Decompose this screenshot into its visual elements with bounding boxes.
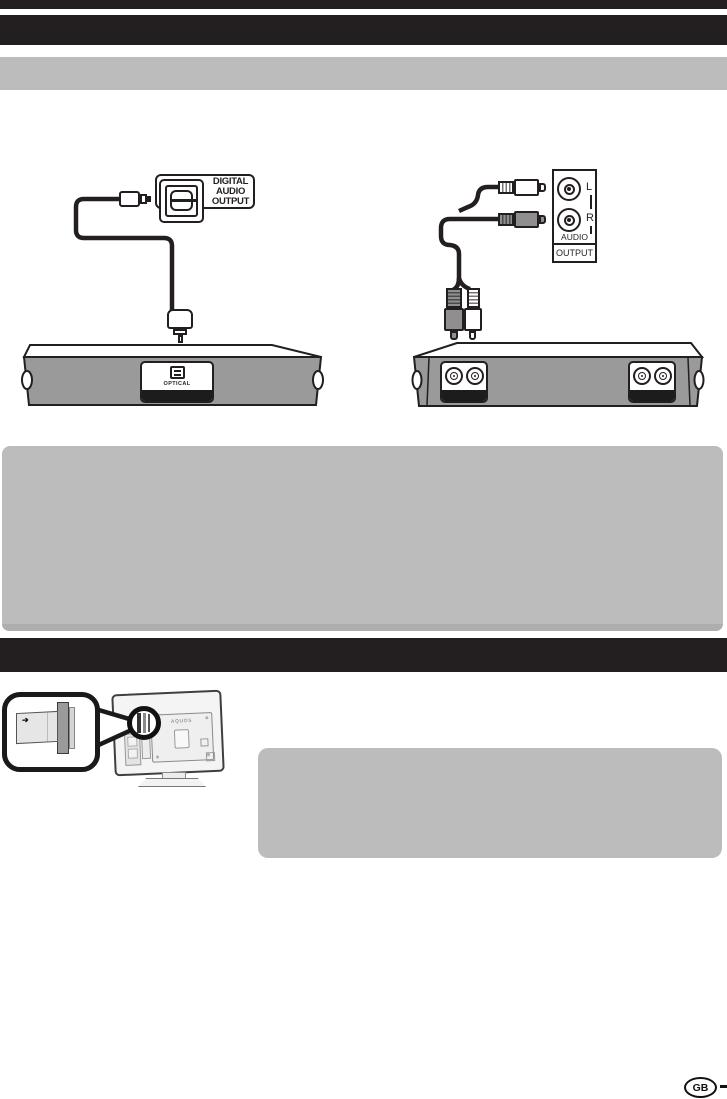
jack-right-label: R bbox=[586, 212, 594, 224]
sub-header-bar bbox=[0, 57, 727, 90]
optical-plug-top-body bbox=[119, 191, 140, 207]
rca-plug-white-top-tip bbox=[539, 183, 546, 192]
right-device-top-face bbox=[414, 343, 702, 357]
tv-vent-square bbox=[206, 752, 215, 761]
rca-plug-white-bottom-ribs bbox=[467, 288, 480, 308]
rca-plug-white-bottom-body bbox=[464, 308, 482, 331]
rca-plug-white-bottom-tip bbox=[469, 331, 476, 340]
page-number-dash bbox=[720, 1085, 727, 1088]
note-box-1 bbox=[2, 446, 723, 631]
output-label: OUTPUT bbox=[556, 248, 593, 258]
ci-slot-bar bbox=[57, 702, 69, 754]
rca-cable-white bbox=[459, 187, 500, 211]
jack-left-label: L bbox=[586, 181, 592, 193]
ci-slot-detail-bar bbox=[148, 714, 150, 732]
optical-plug-top-nose bbox=[140, 194, 147, 204]
ci-slot-detail-bar bbox=[137, 713, 141, 733]
right-device-rca-panel-right bbox=[628, 361, 676, 403]
rca-jack-icon bbox=[466, 367, 484, 385]
jack-label-connector-line-1 bbox=[590, 195, 592, 209]
left-device-panel-strip bbox=[142, 390, 212, 401]
screw-icon bbox=[156, 755, 159, 758]
screw-icon bbox=[205, 716, 208, 719]
right-device-notch-left bbox=[413, 371, 422, 389]
ci-slot-detail-bar bbox=[143, 713, 146, 733]
tv-rating-sticker bbox=[174, 729, 190, 749]
right-device-panel-strip bbox=[630, 390, 674, 401]
rca-jack-row bbox=[445, 367, 484, 385]
rca-plug-white-top-ribs bbox=[498, 181, 514, 194]
manual-page: DIGITAL AUDIO OUTPUT OPTICAL L R AUDIO O… bbox=[0, 0, 727, 1099]
right-device-panel-strip bbox=[442, 390, 486, 401]
output-label-box: OUTPUT bbox=[552, 243, 597, 263]
ci-card-fold-line bbox=[47, 712, 49, 741]
rca-plug-red-top-ribs bbox=[498, 213, 514, 226]
region-badge-label: GB bbox=[693, 1082, 709, 1094]
connection-diagram-lineart bbox=[0, 140, 727, 410]
ci-card-callout-bubble: ➔ bbox=[2, 692, 100, 772]
optical-plug-bottom-body bbox=[167, 309, 193, 329]
digital-audio-output-label-line3: OUTPUT bbox=[205, 197, 256, 207]
right-device-notch-right bbox=[695, 371, 704, 389]
optical-plug-bottom-pin bbox=[178, 335, 183, 343]
top-rule-bar bbox=[0, 0, 727, 9]
optical-port-small-label: OPTICAL bbox=[164, 381, 191, 387]
tv-stand-base bbox=[138, 778, 206, 787]
digital-audio-output-label: DIGITAL AUDIO OUTPUT bbox=[205, 177, 256, 207]
card-arrow-icon: ➔ bbox=[22, 715, 29, 724]
optical-cable bbox=[76, 199, 172, 310]
rca-jack-row bbox=[633, 367, 672, 385]
right-device-rca-panel-left bbox=[440, 361, 488, 403]
optical-plug-top-tip bbox=[147, 196, 151, 202]
audio-output-panel: L R AUDIO bbox=[552, 169, 597, 245]
rca-plug-red-bottom-tip bbox=[450, 331, 458, 340]
rca-plug-red-top-body bbox=[514, 211, 539, 228]
rca-plug-red-bottom-body bbox=[444, 308, 464, 331]
rca-jack-icon bbox=[654, 367, 672, 385]
ci-slot-highlight-circle bbox=[127, 706, 161, 740]
note-box-1-bottom-edge bbox=[2, 624, 723, 631]
optical-port-icon-bar bbox=[170, 199, 197, 202]
audio-label: AUDIO bbox=[554, 232, 595, 242]
ci-card: ➔ bbox=[16, 711, 58, 744]
rca-jack-icon bbox=[633, 367, 651, 385]
left-device-top-face bbox=[24, 345, 321, 357]
rca-cable-red bbox=[441, 219, 500, 280]
section-header-bar-2 bbox=[0, 638, 727, 672]
rca-plug-white-top-body bbox=[514, 179, 539, 196]
rca-plug-red-bottom-ribs bbox=[446, 288, 462, 308]
rca-jack-left-icon bbox=[557, 177, 581, 201]
rca-jack-right-icon bbox=[557, 208, 581, 232]
tv-stand-neck bbox=[162, 772, 186, 779]
rca-jack-icon bbox=[445, 367, 463, 385]
left-device-optical-panel: OPTICAL bbox=[140, 361, 214, 403]
tv-back-small-square bbox=[200, 738, 208, 746]
region-badge: GB bbox=[684, 1077, 717, 1098]
rca-plug-red-top-tip bbox=[539, 215, 546, 224]
optical-port-small-icon bbox=[170, 366, 185, 379]
section-header-bar-1 bbox=[0, 15, 727, 45]
ci-slot-back-plate bbox=[69, 707, 75, 749]
left-device-notch-right bbox=[313, 371, 323, 389]
left-device-notch-left bbox=[22, 371, 32, 389]
note-box-2 bbox=[258, 748, 722, 858]
